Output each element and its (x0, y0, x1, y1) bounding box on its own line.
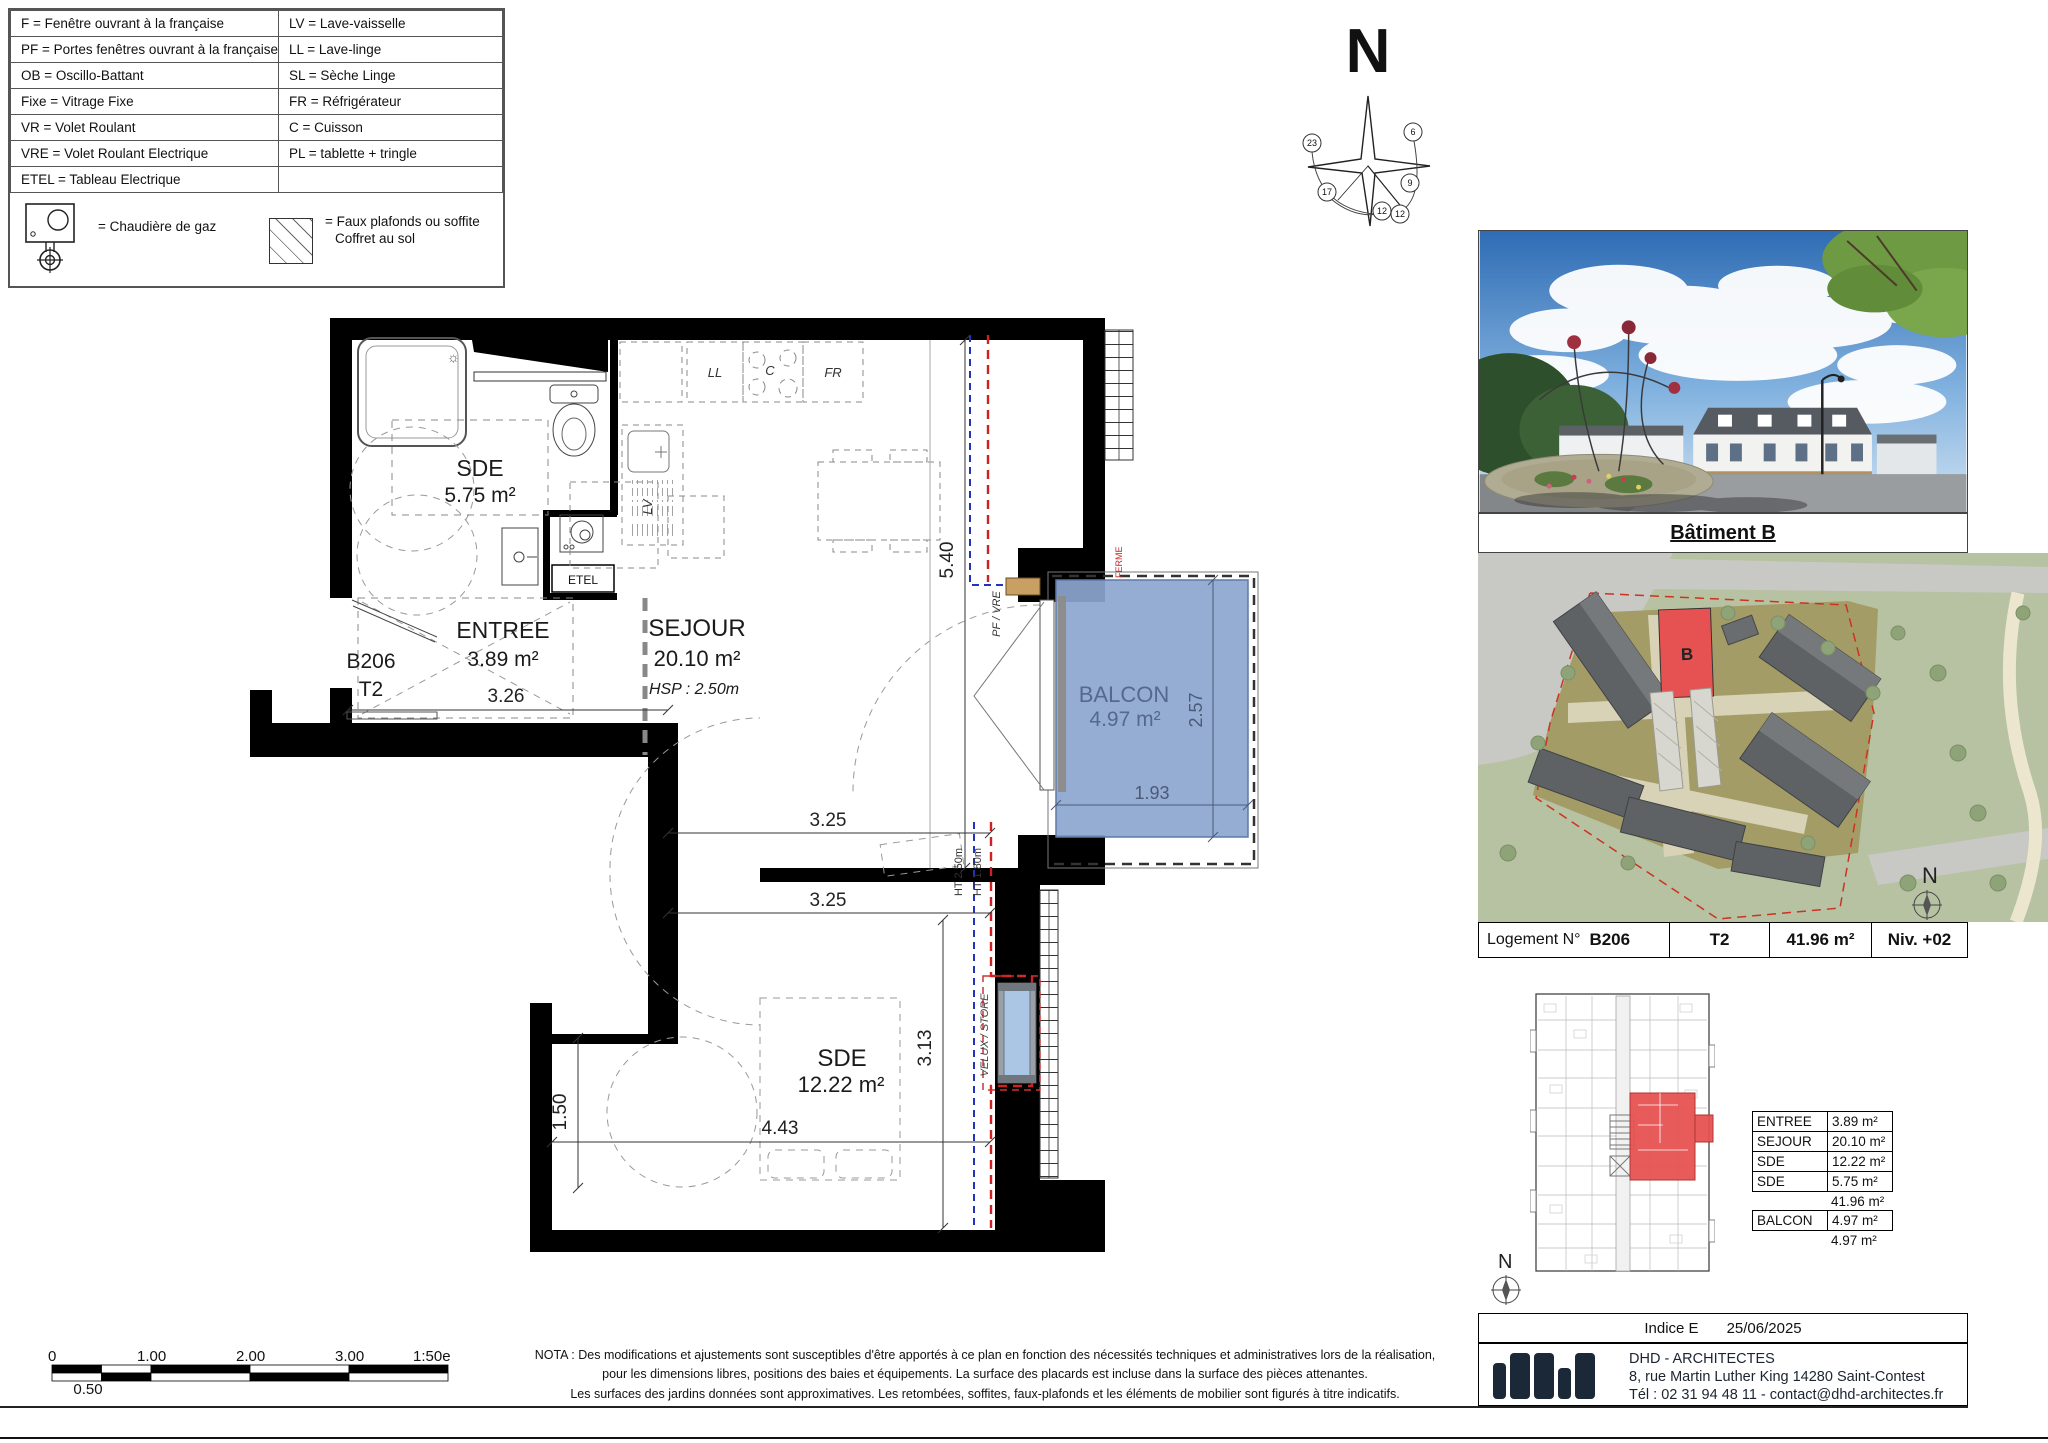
photo-illustration (1479, 231, 1967, 512)
area-row: ENTREE3.89 m² (1752, 1111, 1893, 1132)
dim-313: 3.13 (915, 1030, 936, 1067)
keyplan-north-arrow: N (1486, 1250, 1532, 1310)
area-value: 5.75 m² (1828, 1172, 1892, 1191)
sde2-name: SDE (817, 1045, 866, 1072)
utility-blue-upper (970, 335, 1036, 585)
indice-row: Indice E 25/06/2025 (1478, 1313, 1968, 1343)
area-table: ENTREE3.89 m² SEJOUR20.10 m² SDE12.22 m²… (1752, 1112, 1893, 1250)
coffret (1006, 578, 1040, 595)
nota-text: NOTA : Des modifications et ajustements … (520, 1346, 1450, 1404)
logement-area: 41.96 m² (1786, 930, 1854, 950)
sde2-area: 12.22 m² (798, 1072, 885, 1097)
unit-type: T2 (359, 678, 384, 701)
area-value: 20.10 m² (1828, 1132, 1892, 1151)
area-value: 4.97 m² (1828, 1211, 1892, 1230)
compass-hour-17: 17 (1322, 187, 1332, 197)
keyplan-unit-highlight (1630, 1093, 1695, 1180)
balcony-door-glazing (1040, 600, 1054, 790)
site-plan-svg: B N (1478, 553, 2048, 922)
scale-2: 2.00 (236, 1348, 265, 1365)
dim-150: 1.50 (550, 1094, 571, 1131)
logement-label: Logement N° (1487, 931, 1581, 949)
balcon-area: 4.97 m² (1089, 708, 1160, 731)
sejour-hsp: HSP : 2.50m (649, 681, 739, 698)
dim-257: 2.57 (1186, 692, 1206, 727)
logement-info-row: Logement N° B206 T2 41.96 m² Niv. +02 (1478, 922, 1968, 958)
scale-0: 0 (48, 1348, 56, 1365)
compass-north-label: N (1346, 17, 1391, 86)
dim-325a: 3.25 (810, 810, 847, 831)
type-cell: T2 (1669, 923, 1769, 957)
clearances-doors (350, 420, 1040, 1187)
compass-hour-6: 6 (1410, 127, 1415, 137)
site-building-b: B (1658, 608, 1713, 698)
area-label: BALCON (1753, 1211, 1828, 1230)
footer-rule (0, 1406, 1968, 1408)
site-building-b-label: B (1681, 645, 1694, 664)
firm-text: DHD - ARCHITECTES 8, rue Martin Luther K… (1629, 1350, 1943, 1404)
armchair (668, 496, 724, 558)
firm-name: DHD - ARCHITECTES (1629, 1350, 1943, 1368)
entree-name: ENTREE (456, 617, 549, 643)
firm-tel: Tél : 02 31 94 48 11 - contact@dhd-archi… (1629, 1386, 1943, 1404)
keyplan-svg (1530, 990, 1715, 1275)
logement-num: B206 (1589, 930, 1630, 950)
shower-sun-icon: ☼ (447, 349, 460, 365)
area-cell: 41.96 m² (1769, 923, 1871, 957)
sejour-area: 20.10 m² (654, 646, 741, 671)
area-value: 3.89 m² (1828, 1112, 1892, 1131)
label-fr: FR (824, 365, 841, 380)
area-value: 12.22 m² (1828, 1152, 1892, 1171)
pf-vre-label: PF / VRE (991, 591, 1003, 637)
dim-443: 4.43 (762, 1118, 799, 1139)
floorplan-svg: N 23 6 17 9 12 12 (0, 0, 1480, 1340)
dim-540: 5.40 (937, 542, 958, 579)
area-label: SDE (1753, 1172, 1828, 1191)
wc-bowl (553, 404, 595, 456)
door-opening-symbol (974, 602, 1044, 790)
logement-level: Niv. +02 (1888, 930, 1951, 950)
wc-tank (550, 385, 598, 403)
compass-rose: N 23 6 17 9 12 12 (1303, 17, 1430, 226)
entree-area: 3.89 m² (467, 648, 538, 671)
dhd-logo (1493, 1351, 1603, 1401)
area-row: SDE12.22 m² (1752, 1151, 1893, 1172)
scale-1: 1.00 (137, 1348, 166, 1365)
soffit-wedge (472, 338, 608, 372)
ht-180-label: HT 1.80m (972, 848, 984, 896)
label-lv: LV (640, 498, 655, 515)
area-label: ENTREE (1753, 1112, 1828, 1131)
area-label: SDE (1753, 1152, 1828, 1171)
firm-block: DHD - ARCHITECTES 8, rue Martin Luther K… (1478, 1343, 1968, 1406)
dim-325b: 3.25 (810, 890, 847, 911)
keyplan-balcony-highlight (1695, 1115, 1713, 1142)
area-row: SEJOUR20.10 m² (1752, 1131, 1893, 1152)
velux-label: VELUX / STORE (979, 993, 991, 1077)
sde1-area: 5.75 m² (444, 484, 515, 507)
keyplan-section: N ENTREE3.89 m² SEJOUR20.10 m² SDE12.22 … (1478, 958, 1968, 1313)
scale-3: 3.00 (335, 1348, 364, 1365)
room-labels: SDE 5.75 m² ENTREE 3.89 m² SEJOUR 20.10 … (346, 455, 884, 1097)
logement-cell: Logement N° B206 (1479, 923, 1669, 957)
site-plan: B N (1478, 553, 2048, 922)
compass-hour-12b: 12 (1395, 209, 1405, 219)
label-c: C (765, 363, 775, 378)
plan-sheet: F = Fenêtre ouvrant à la françaiseLV = L… (0, 0, 2048, 1443)
dining-table (818, 462, 940, 540)
shelf (474, 372, 606, 381)
indice-date: 25/06/2025 (1727, 1320, 1802, 1337)
area-row-balcon: BALCON4.97 m² (1752, 1210, 1893, 1231)
etel-label: ETEL (568, 573, 598, 587)
site-north-label: N (1922, 863, 1938, 888)
unit-code: B206 (346, 650, 395, 673)
kitchen-units (570, 342, 940, 568)
nota-line-2: pour les dimensions libres, positions de… (520, 1365, 1450, 1384)
indice-label: Indice E (1644, 1320, 1698, 1337)
firm-address: 8, rue Martin Luther King 14280 Saint-Co… (1629, 1368, 1943, 1386)
compass-hour-12a: 12 (1377, 206, 1387, 216)
area-total: 4.97 m² (1831, 1231, 1877, 1250)
logement-type: T2 (1710, 930, 1730, 950)
balcon-name: BALCON (1079, 682, 1169, 707)
scale-ratio: 1:50e (413, 1348, 451, 1365)
compass-hour-9: 9 (1407, 178, 1412, 188)
sejour-name: SEJOUR (648, 615, 745, 642)
sheet-bottom-rule (0, 1437, 2048, 1439)
label-ll: LL (708, 365, 722, 380)
area-total: 41.96 m² (1831, 1192, 1884, 1211)
dim-193: 1.93 (1134, 783, 1169, 803)
scale-half: 0.50 (73, 1381, 102, 1398)
area-label: SEJOUR (1753, 1132, 1828, 1151)
area-total-row: 41.96 m² (1752, 1192, 1893, 1211)
nota-line-3: Les surfaces des jardins données sont ap… (520, 1385, 1450, 1404)
batiment-title: Bâtiment B (1478, 513, 1968, 553)
walls (250, 318, 1105, 1252)
sde1-name: SDE (456, 455, 503, 481)
area-total-row: 4.97 m² (1752, 1231, 1893, 1250)
area-row: SDE5.75 m² (1752, 1171, 1893, 1192)
compass-hour-23: 23 (1307, 138, 1317, 148)
ht-250-label: HT 2.50m (953, 848, 965, 896)
velux-window: VELUX / STORE (979, 976, 1040, 1090)
keyplan-north-label: N (1498, 1251, 1512, 1273)
nota-line-1: NOTA : Des modifications et ajustements … (520, 1346, 1450, 1365)
level-cell: Niv. +02 (1871, 923, 1967, 957)
scale-bar: 0 1.00 2.00 3.00 1:50e 0.50 (48, 1348, 458, 1398)
ferme-note: FERME (1114, 547, 1124, 579)
photo-batiment-b (1478, 230, 1968, 513)
dim-326: 3.26 (488, 686, 525, 707)
